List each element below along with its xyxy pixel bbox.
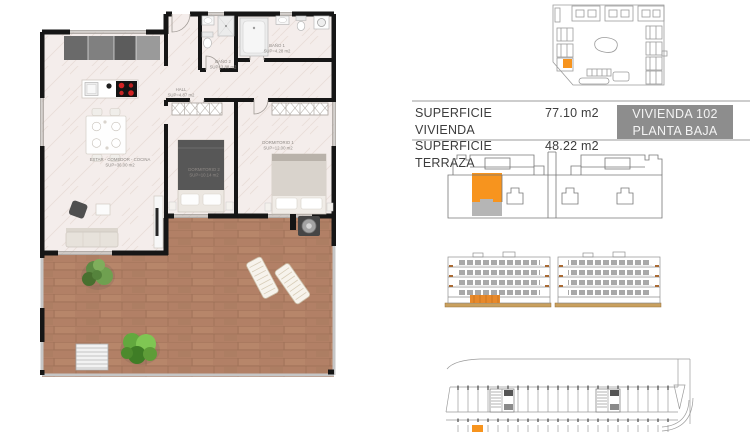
- surface-vivienda-label: SUPERFICIE VIVIENDA: [415, 105, 545, 138]
- ramp-arrow: [674, 385, 685, 409]
- room-area-bano2: SUP=3.88 m2: [210, 65, 237, 70]
- unit-badge-floor: PLANTA BAJA: [617, 123, 733, 140]
- parking-stall-lines-row2: [458, 425, 668, 432]
- site-pool: [595, 38, 618, 53]
- elevation-unit-102-highlight: [470, 295, 500, 303]
- garage-boundary: [447, 359, 690, 424]
- site-amenities: [579, 69, 629, 84]
- unit-badge-name: VIVIENDA 102: [617, 106, 733, 123]
- dining-table: [86, 109, 126, 162]
- floorplan-sheet: ESTAR - COMEDOR - COCINA SUP=36.00 m2 HA…: [0, 0, 756, 432]
- room-label-hall: HALL: [176, 87, 187, 92]
- room-label-bano1: BAÑO 1: [269, 43, 285, 48]
- locator-terrace-steps: [507, 188, 633, 204]
- site-buildings-left: [557, 28, 573, 71]
- unit-locator-schematic: [445, 148, 670, 226]
- bed-dormitorio-1: [265, 154, 333, 214]
- room-label-bano2: BAÑO 2: [215, 59, 231, 64]
- room-label-dorm2: DORMITORIO 2: [188, 167, 220, 172]
- surface-row-vivienda: SUPERFICIE VIVIENDA 77.10 m2: [415, 105, 625, 138]
- site-unit-102-highlight: [563, 59, 572, 68]
- tv: [156, 208, 159, 236]
- building-elevations: [443, 250, 678, 312]
- surface-summary-block: SUPERFICIE VIVIENDA 77.10 m2 SUPERFICIE …: [412, 100, 750, 141]
- parking-stall-lines: [458, 387, 668, 412]
- coffee-table: [96, 204, 110, 215]
- sofa: [66, 232, 118, 247]
- room-label-estar: ESTAR - COMEDOR - COCINA: [90, 157, 151, 162]
- unit-badge: VIVIENDA 102 PLANTA BAJA: [617, 105, 733, 139]
- terrace-stairs: [76, 344, 108, 370]
- stair-core-1: [490, 389, 514, 412]
- room-area-dorm2: SUP=10.14 m2: [189, 173, 219, 178]
- cooktop: [116, 81, 137, 97]
- site-plan: [543, 2, 750, 90]
- apartment-floor-plan: ESTAR - COMEDOR - COCINA SUP=36.00 m2 HA…: [40, 6, 336, 390]
- room-area-bano1: SUP=4.28 m2: [264, 49, 291, 54]
- ground-band: [445, 303, 661, 307]
- garage-curved-wall: [662, 398, 693, 431]
- room-area-dorm1: SUP=12.00 m2: [263, 146, 293, 151]
- room-area-estar: SUP=36.00 m2: [105, 163, 135, 168]
- locator-unit-102-highlight: [472, 173, 502, 202]
- room-area-hall: SUP=4.87 m2: [168, 93, 195, 98]
- elevation-building-right: [558, 252, 660, 303]
- surface-vivienda-value: 77.10 m2: [545, 105, 625, 138]
- stair-core-2: [596, 389, 620, 412]
- parking-space-102-highlight: [472, 425, 483, 432]
- elevation-building-left: [448, 252, 550, 303]
- room-label-dorm1: DORMITORIO 1: [262, 140, 294, 145]
- garage-parking-plan: [438, 332, 756, 432]
- site-buildings-top: [572, 6, 664, 21]
